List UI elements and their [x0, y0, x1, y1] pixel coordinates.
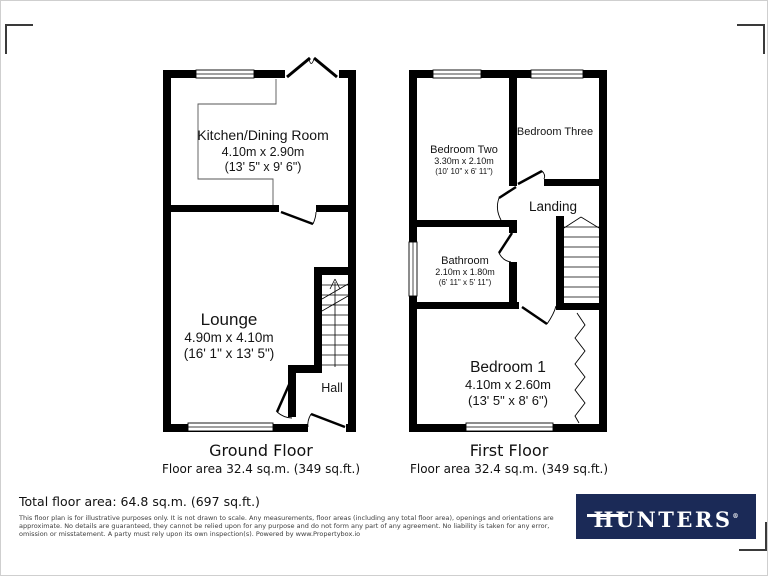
- french-doors: [285, 58, 339, 78]
- bedroom3-door-leaf: [518, 171, 542, 184]
- ground-floor-caption: Ground Floor Floor area 32.4 sq.m. (349 …: [156, 442, 366, 477]
- disclaimer-line-1: This floor plan is for illustrative purp…: [19, 514, 571, 522]
- kitchen-window: [196, 70, 254, 78]
- bathroom-bottom-wall: [417, 302, 519, 309]
- bedroom2-room-label: Bedroom Two: [430, 144, 498, 156]
- disclaimer-line-3: omission or misstatement. A party must r…: [19, 530, 571, 538]
- brand-name: HUNTERS: [593, 507, 732, 532]
- ground-outer-walls: [163, 70, 356, 432]
- kitchen-metric-label: 4.10m x 2.90m: [222, 145, 305, 159]
- bedroom1-door-swing: [547, 306, 556, 324]
- bedroom1-window: [466, 423, 553, 431]
- bathroom-top-wall: [417, 220, 517, 227]
- ground-interior-wall: [171, 205, 348, 212]
- bedroom2-window: [433, 70, 481, 78]
- hall-room-label: Hall: [321, 381, 343, 395]
- registered-mark: ®: [733, 513, 739, 520]
- disclaimer: This floor plan is for illustrative purp…: [19, 514, 571, 538]
- bathroom-door-leaf: [499, 233, 512, 253]
- lounge-metric-label: 4.90m x 4.10m: [184, 330, 273, 345]
- floorplan-drawing: Kitchen/Dining Room 4.10m x 2.90m (13' 5…: [1, 1, 768, 491]
- kitchen-door-swing: [313, 212, 316, 224]
- bedroom1-room-label: Bedroom 1: [470, 359, 546, 376]
- bedroom1-imperial-label: (13' 5" x 8' 6"): [468, 393, 548, 408]
- lounge-imperial-label: (16' 1" x 13' 5"): [184, 346, 275, 361]
- bathroom-window: [409, 242, 417, 296]
- floorplan-page: Kitchen/Dining Room 4.10m x 2.90m (13' 5…: [0, 0, 768, 576]
- first-floor-title: First Floor: [404, 442, 614, 460]
- kitchen-room-label: Kitchen/Dining Room: [197, 127, 329, 143]
- lounge-room-label: Lounge: [201, 310, 258, 329]
- bathroom-right-wall-upper: [509, 220, 517, 233]
- bedroom2-door-swing: [497, 198, 501, 220]
- kitchen-imperial-label: (13' 5" x 9' 6"): [225, 160, 302, 174]
- ground-floor-title: Ground Floor: [156, 442, 366, 460]
- logo-dash: [587, 514, 628, 517]
- bedroom1-metric-label: 4.10m x 2.60m: [465, 377, 551, 392]
- bedroom2-door-leaf: [499, 187, 516, 198]
- first-floor-plan: Bedroom Two 3.30m x 2.10m (10' 10" x 6' …: [409, 70, 607, 432]
- bathroom-room-label: Bathroom: [441, 255, 489, 267]
- bedroom3-wall: [544, 179, 599, 186]
- lounge-window: [188, 423, 273, 431]
- bathroom-imperial-label: (6' 11" x 5' 11"): [439, 278, 492, 287]
- kitchen-door-leaf: [281, 212, 313, 224]
- bedroom2-metric-label: 3.30m x 2.10m: [434, 156, 494, 166]
- hunters-logo: HUNTERS®: [576, 494, 756, 539]
- wardrobe-doors: [575, 313, 585, 423]
- hall-wall-horizontal: [288, 365, 322, 373]
- ground-floor-plan: Kitchen/Dining Room 4.10m x 2.90m (13' 5…: [163, 58, 356, 432]
- bedroom-divider-wall: [509, 78, 517, 186]
- total-floor-area: Total floor area: 64.8 sq.m. (697 sq.ft.…: [19, 494, 260, 509]
- bedroom3-window: [531, 70, 583, 78]
- bathroom-door-swing: [499, 253, 511, 262]
- bathroom-metric-label: 2.10m x 1.80m: [435, 267, 495, 277]
- first-floor-caption: First Floor Floor area 32.4 sq.m. (349 s…: [404, 442, 614, 477]
- ground-floor-area: Floor area 32.4 sq.m. (349 sq.ft.): [156, 461, 366, 477]
- first-floor-area: Floor area 32.4 sq.m. (349 sq.ft.): [404, 461, 614, 477]
- landing-room-label: Landing: [529, 199, 577, 214]
- bedroom3-room-label: Bedroom Three: [517, 126, 593, 138]
- front-door: [308, 414, 346, 432]
- bedroom2-imperial-label: (10' 10" x 6' 11"): [435, 167, 493, 176]
- disclaimer-line-2: approximate. No details are guaranteed, …: [19, 522, 571, 530]
- bathroom-right-wall-lower: [509, 262, 517, 308]
- kitchen-door-opening: [279, 205, 316, 212]
- bedroom1-door-leaf: [522, 307, 547, 324]
